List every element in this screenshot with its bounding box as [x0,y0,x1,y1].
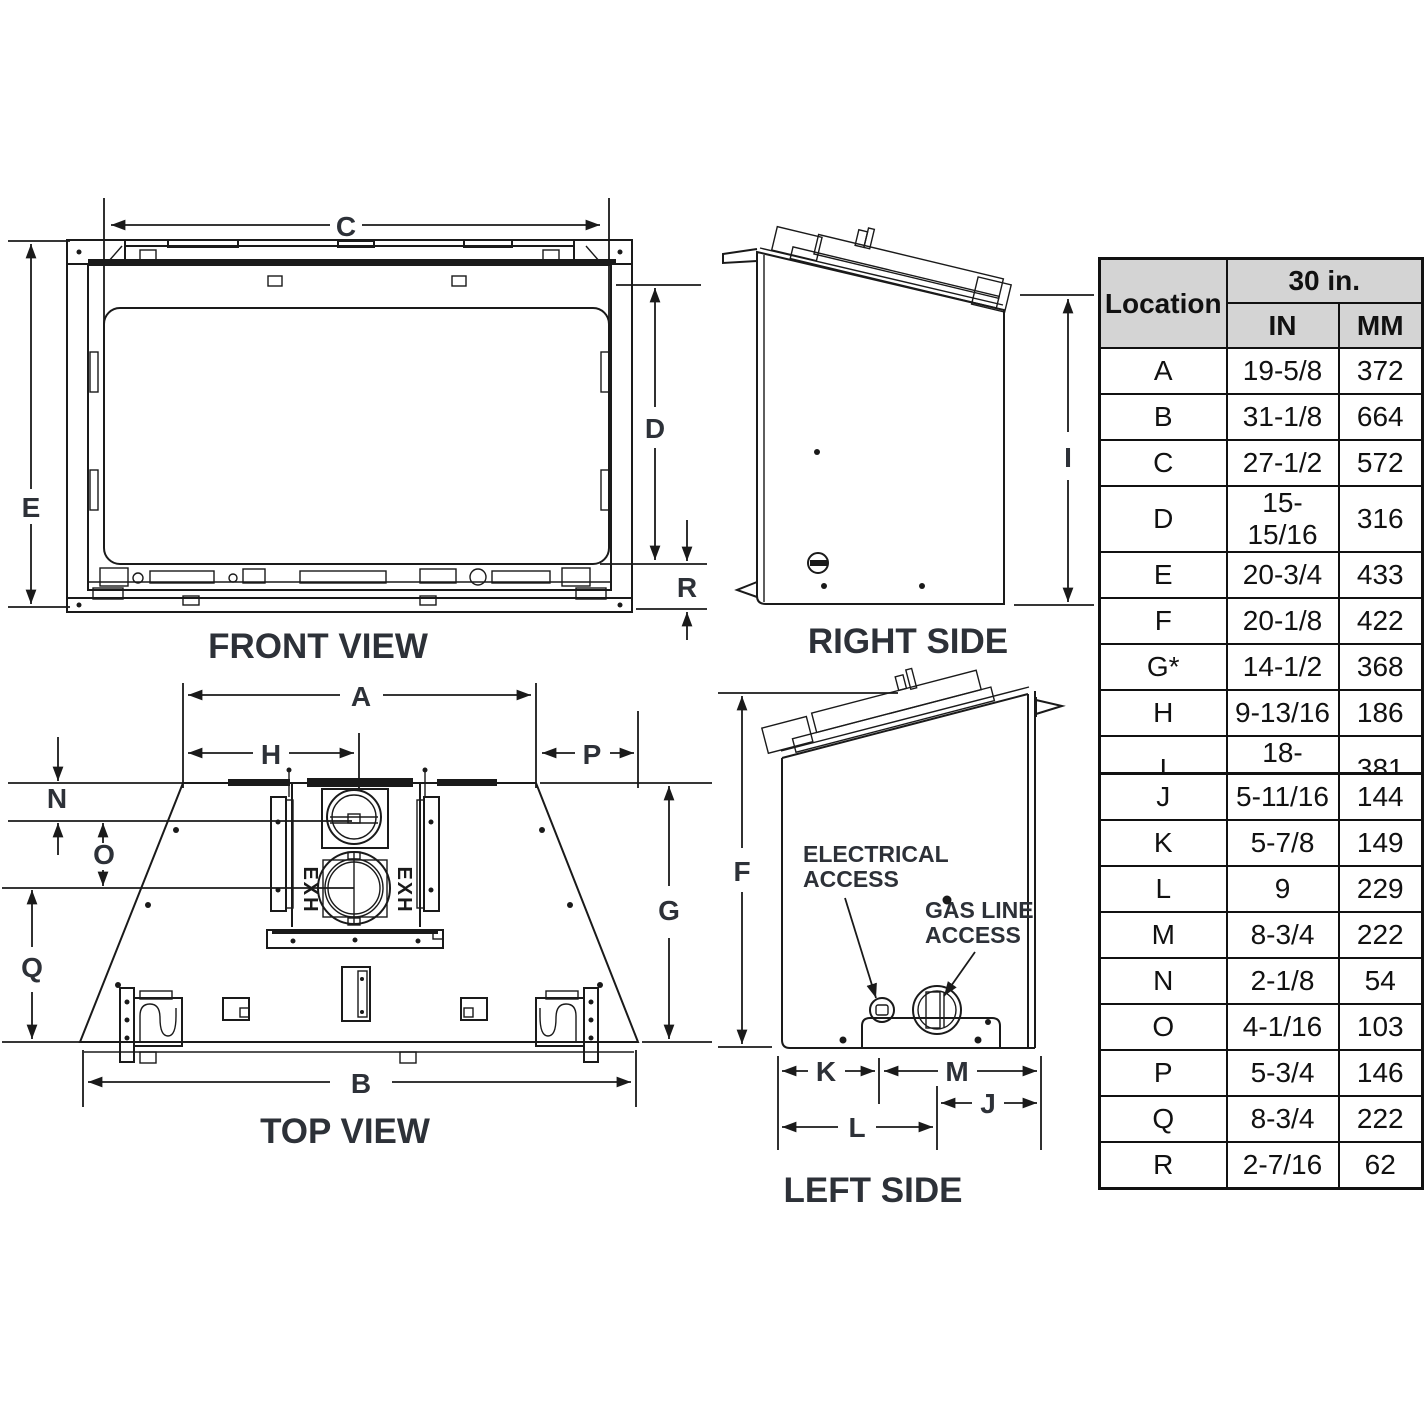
dim-label-i: I [1064,442,1072,473]
dim-label-f: F [733,856,750,887]
table-header-mm: MM [1339,303,1423,348]
top-view-drawing: A H P N O Q G B [2,681,712,1151]
dimension-table-upper: Location 30 in. IN MM A19-5/8372 B31-1/8… [1098,257,1424,804]
dim-label-q: Q [21,952,43,983]
table-row: Q8-3/4222 [1100,1096,1423,1142]
table-row: P5-3/4146 [1100,1050,1423,1096]
dim-label-b: B [351,1068,371,1099]
gas-line-access-label-line2: ACCESS [925,922,1021,948]
table-row: E20-3/4433 [1100,552,1423,598]
table-row: A19-5/8372 [1100,348,1423,394]
dim-label-a: A [351,681,371,712]
dim-label-e: E [22,492,41,523]
dim-label-m: M [945,1056,968,1087]
front-view-title: FRONT VIEW [208,627,428,666]
dim-label-o: O [93,839,115,870]
dim-label-g: G [658,895,680,926]
table-row: M8-3/4222 [1100,912,1423,958]
dim-label-n: N [47,783,67,814]
left-side-drawing: F ELECTRICAL ACCESS GAS LINE ACCESS [718,650,1062,1210]
fireplace-dimension-sheet: C E D R [0,0,1426,1426]
left-side-title: LEFT SIDE [784,1171,963,1210]
dim-label-r: R [677,572,697,603]
table-row: J5-11/16144 [1100,774,1423,821]
table-row: R2-7/1662 [1100,1142,1423,1189]
dimension-table-lower: J5-11/16144 K5-7/8149 L9229 M8-3/4222 N2… [1098,772,1424,1190]
exh-label-left: EXH [299,866,321,913]
table-header-location: Location [1100,259,1227,349]
dim-label-l: L [848,1112,865,1143]
exh-label-right: EXH [393,866,415,913]
table-header-size: 30 in. [1227,259,1423,304]
table-row: O4-1/16103 [1100,1004,1423,1050]
table-row: N2-1/854 [1100,958,1423,1004]
top-view-title: TOP VIEW [260,1112,430,1151]
gas-line-access-label-line1: GAS LINE [925,897,1034,923]
top-left-bracket [120,988,182,1062]
right-side-title: RIGHT SIDE [808,622,1008,661]
table-row: C27-1/2572 [1100,440,1423,486]
table-row: B31-1/8664 [1100,394,1423,440]
dim-label-c: C [336,211,356,242]
dim-label-k: K [816,1056,836,1087]
electrical-access-label-line2: ACCESS [803,866,899,892]
table-row: H9-13/16186 [1100,690,1423,736]
dim-label-h: H [261,739,281,770]
table-row: F20-1/8422 [1100,598,1423,644]
dim-label-j: J [980,1088,996,1119]
table-row: L9229 [1100,866,1423,912]
top-vent-module: EXH EXH [267,768,443,949]
table-row: K5-7/8149 [1100,820,1423,866]
right-side-drawing: I RIGHT SIDE [723,207,1094,661]
table-header-in: IN [1227,303,1339,348]
electrical-access-label-line1: ELECTRICAL [803,841,949,867]
dim-label-p: P [583,739,602,770]
table-row: G*14-1/2368 [1100,644,1423,690]
table-row: D15-15/16316 [1100,486,1423,552]
front-bottom-mechanism [88,568,611,605]
front-view-drawing: C E D R [8,198,707,666]
dim-label-d: D [645,413,665,444]
top-right-bracket [536,988,598,1062]
